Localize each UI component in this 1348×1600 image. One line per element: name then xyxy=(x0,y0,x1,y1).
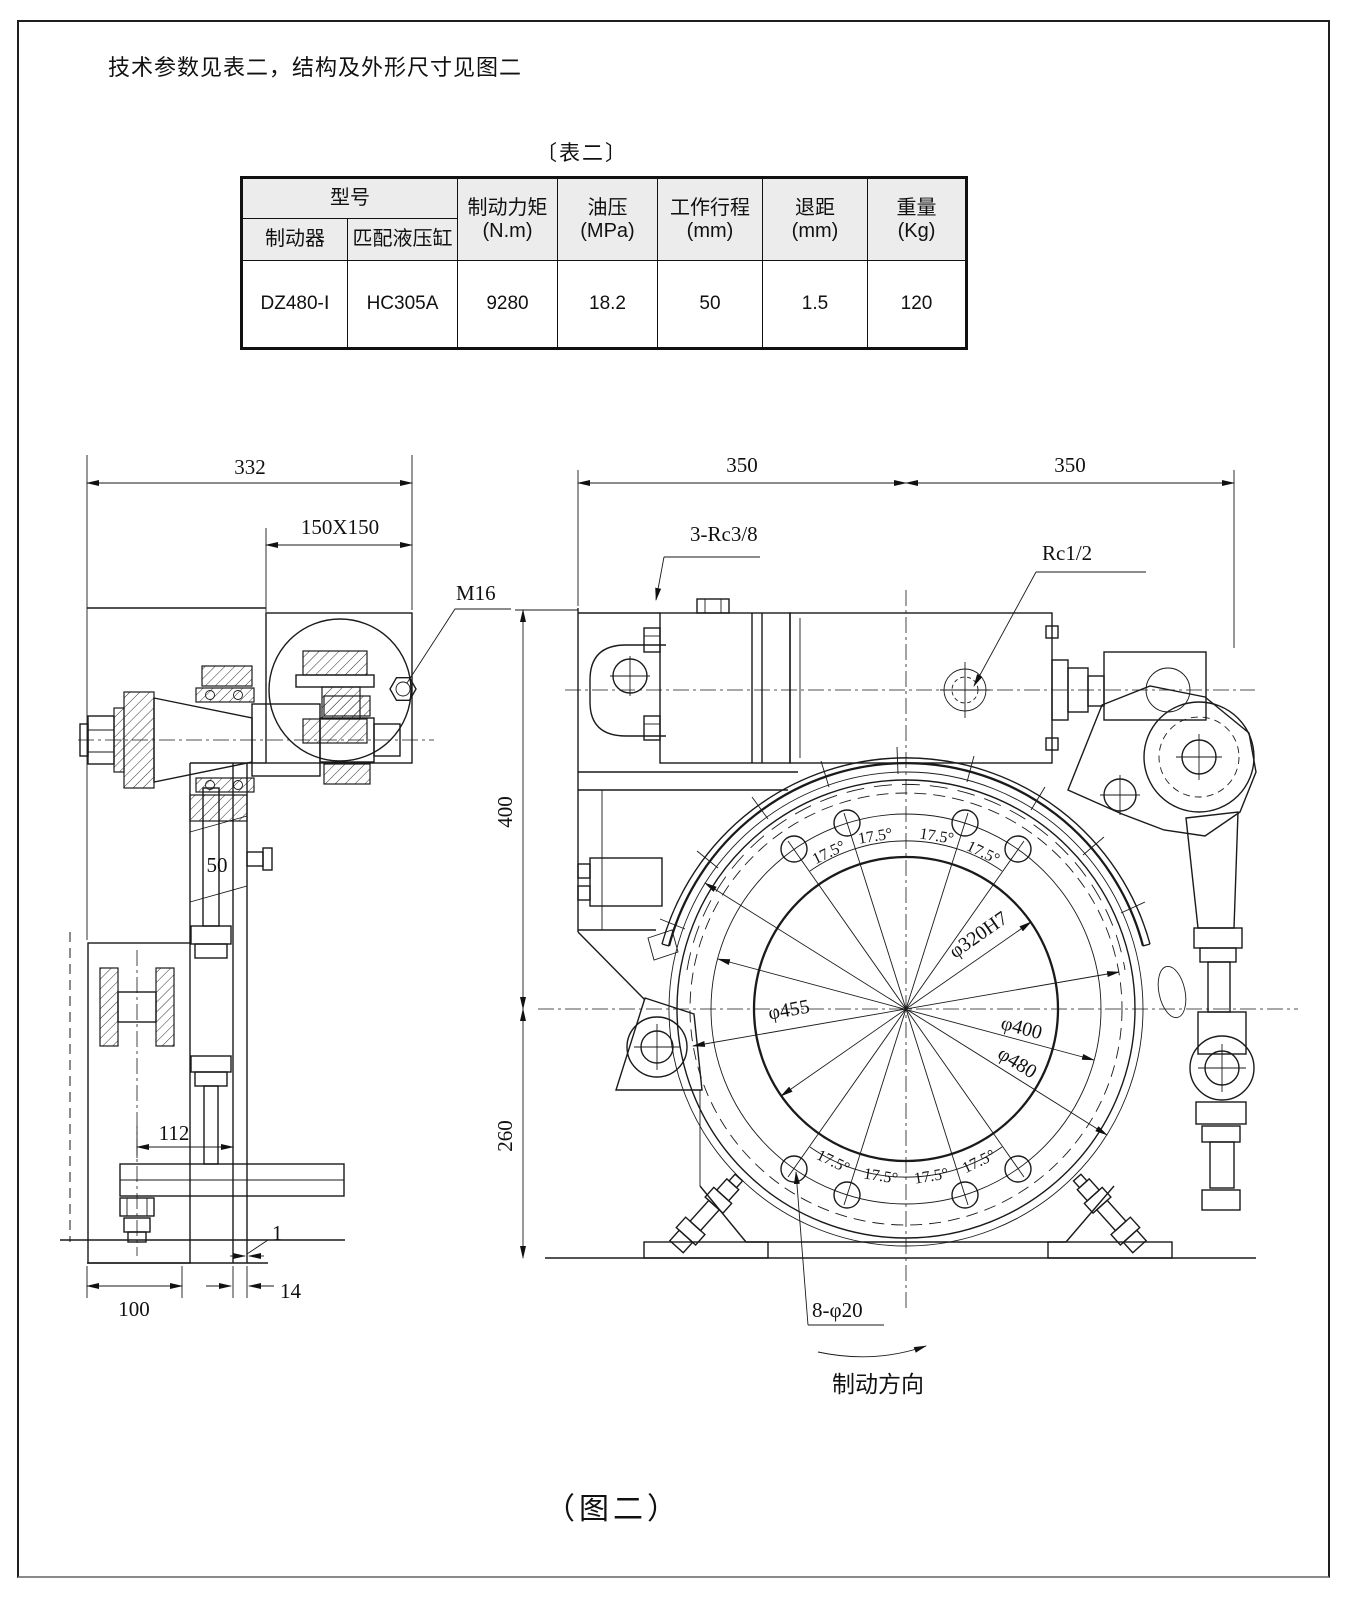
angle-17-5-bottom-4: 17.5° xyxy=(960,1147,998,1177)
side-view xyxy=(60,455,511,1298)
dimension-labels: 332 150X150 M16 50 112 100 1 14 350 350 … xyxy=(118,453,1092,1397)
dim-50: 50 xyxy=(207,853,228,877)
dim-1: 1 xyxy=(272,1221,283,1245)
dim-350-left: 350 xyxy=(726,453,758,477)
m16-hole xyxy=(396,682,410,696)
valve-block xyxy=(660,613,790,763)
label-braking-direction: 制动方向 xyxy=(832,1371,924,1397)
angle-17-5-bottom-2: 17.5° xyxy=(862,1165,899,1187)
lower-pivot-bracket xyxy=(616,998,702,1090)
dim-phi480: φ480 xyxy=(994,1043,1041,1084)
dim-100: 100 xyxy=(118,1297,150,1321)
dim-phi320h7: φ320H7 xyxy=(945,907,1012,963)
angle-17-5-top-4: 17.5° xyxy=(964,838,1002,868)
dim-112: 112 xyxy=(159,1121,190,1145)
front-view xyxy=(515,470,1298,1357)
drawing-sheet: 技术参数见表二，结构及外形尺寸见图二 〔表二〕 （图二） 型号 制动力矩 (N.… xyxy=(0,0,1348,1600)
angle-17-5-top-2: 17.5° xyxy=(857,825,894,847)
dim-332: 332 xyxy=(234,455,266,479)
dim-m16: M16 xyxy=(456,581,496,605)
angle-17-5-bottom-1: 17.5° xyxy=(814,1147,852,1177)
angle-17-5-bottom-3: 17.5° xyxy=(913,1165,950,1187)
hydraulic-cylinder xyxy=(790,613,1052,763)
dim-phi455: φ455 xyxy=(767,996,812,1025)
dim-350-right: 350 xyxy=(1054,453,1086,477)
shaft-flange xyxy=(124,692,154,788)
angle-17-5-top-1: 17.5° xyxy=(810,838,848,868)
dim-150x150: 150X150 xyxy=(301,515,379,539)
dim-400: 400 xyxy=(493,796,517,828)
label-8-phi20: 8-φ20 xyxy=(812,1298,863,1322)
label-rc12: Rc1/2 xyxy=(1042,541,1092,565)
port-boss xyxy=(697,599,729,613)
dim-14: 14 xyxy=(280,1279,302,1303)
dim-260: 260 xyxy=(493,1120,517,1152)
direction-arrow xyxy=(818,1346,926,1357)
dim-phi400: φ400 xyxy=(999,1012,1045,1044)
right-foot xyxy=(1048,1242,1172,1258)
angle-17-5-top-3: 17.5° xyxy=(918,825,955,847)
left-foot xyxy=(644,1242,768,1258)
label-3-rc38: 3-Rc3/8 xyxy=(690,522,758,546)
figure-two-drawing: 332 150X150 M16 50 112 100 1 14 350 350 … xyxy=(0,0,1348,1600)
